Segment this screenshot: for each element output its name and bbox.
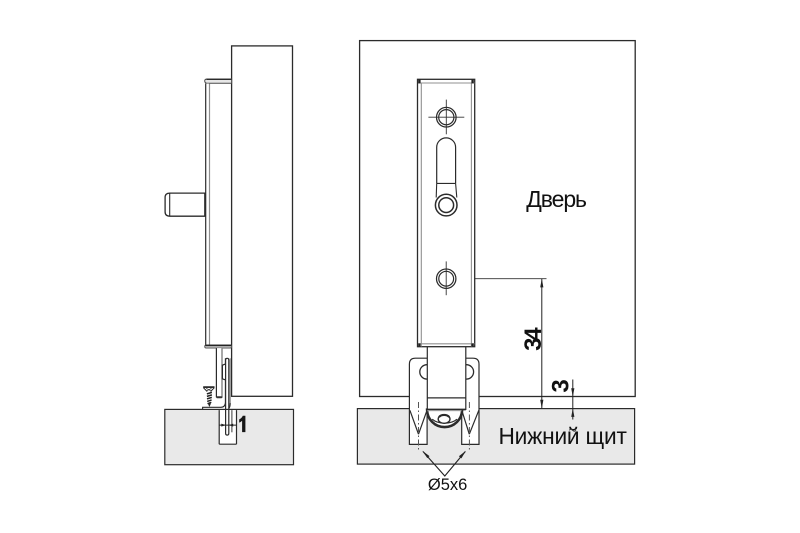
svg-text:Ø5x6: Ø5x6 xyxy=(428,476,467,494)
svg-text:3: 3 xyxy=(547,379,574,392)
svg-text:Нижний щит: Нижний щит xyxy=(499,423,627,449)
svg-text:Дверь: Дверь xyxy=(526,186,587,212)
